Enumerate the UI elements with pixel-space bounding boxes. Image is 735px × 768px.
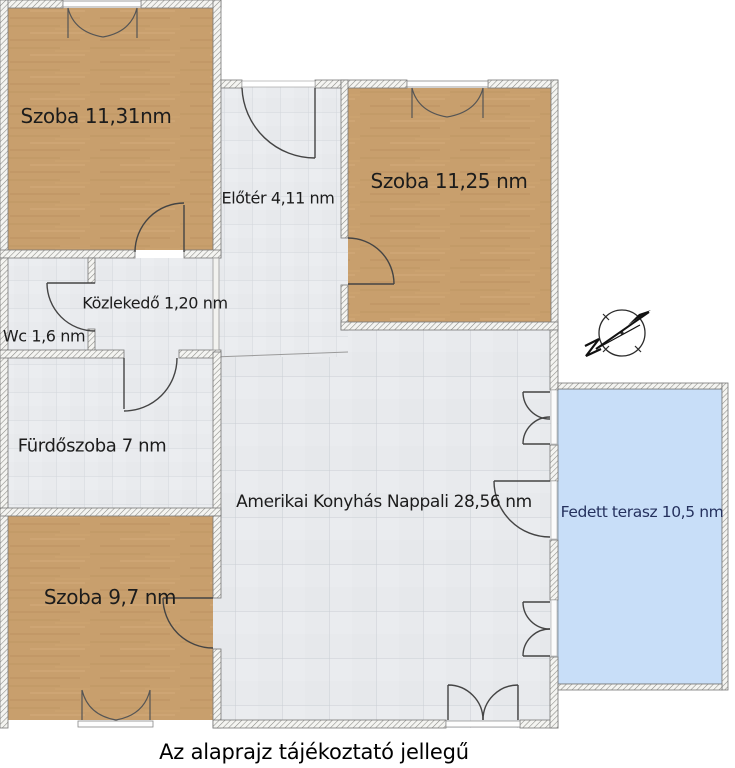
room-label-fedett-terasz: Fedett terasz 10,5 nm bbox=[561, 503, 724, 521]
room-label-furdoszoba: Fürdőszoba 7 nm bbox=[18, 436, 166, 457]
floorplan: Szoba 11,31nm Előtér 4,11 nm Szoba 11,25… bbox=[0, 0, 735, 768]
room-label-wc: Wc 1,6 nm bbox=[3, 327, 85, 346]
north-arrow-compass-icon bbox=[585, 310, 651, 356]
room-label-nappali: Amerikai Konyhás Nappali 28,56 nm bbox=[236, 492, 532, 512]
caption-text: Az alaprajz tájékoztató jellegű bbox=[159, 740, 469, 764]
room-label-szoba-felso-bal: Szoba 11,31nm bbox=[21, 104, 172, 128]
room-label-szoba-felso-jobb: Szoba 11,25 nm bbox=[371, 169, 528, 193]
terrace-floor bbox=[558, 389, 722, 684]
room-label-eloter: Előtér 4,11 nm bbox=[222, 189, 335, 208]
room-label-kozlekedo: Közlekedő 1,20 nm bbox=[82, 294, 227, 313]
room-label-szoba-also: Szoba 9,7 nm bbox=[44, 585, 176, 609]
